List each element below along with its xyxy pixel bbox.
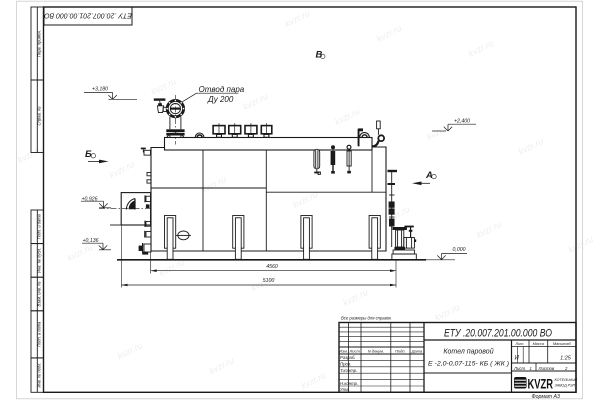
svg-text:Инв. № подл.: Инв. № подл.	[37, 363, 42, 388]
svg-text:Разраб.: Разраб.	[340, 355, 356, 360]
svg-text:Лист: Лист	[513, 366, 525, 371]
svg-text:Взам. инв. №: Взам. инв. №	[37, 281, 42, 306]
svg-text:Подп. и дата: Подп. и дата	[37, 214, 42, 240]
svg-text:+2,400: +2,400	[454, 119, 470, 125]
svg-text:Подп. и дата: Подп. и дата	[37, 321, 42, 347]
svg-text:Б: Б	[85, 149, 92, 160]
svg-text:Котел паровой: Котел паровой	[443, 347, 493, 355]
svg-text:Н.контр.: Н.контр.	[340, 381, 358, 386]
svg-text:5100: 5100	[263, 278, 275, 284]
svg-text:Справ. №: Справ. №	[37, 106, 42, 125]
svg-text:Листов: Листов	[538, 366, 555, 371]
svg-text:Ду 200: Ду 200	[207, 95, 234, 104]
svg-text:Дата: Дата	[411, 348, 423, 353]
svg-text:И: И	[515, 355, 520, 361]
svg-text:Лит.: Лит.	[515, 342, 525, 346]
svg-text:Все размеры для справок: Все размеры для справок	[341, 316, 392, 321]
svg-text:Е -2,0-0,07-115- КБ ( ЖК ): Е -2,0-0,07-115- КБ ( ЖК )	[428, 361, 509, 368]
svg-text:Пров.: Пров.	[340, 362, 351, 367]
svg-text:Подп.: Подп.	[395, 348, 406, 353]
svg-text:Перв. примен.: Перв. примен.	[37, 30, 42, 57]
svg-text:Масса: Масса	[533, 342, 544, 346]
svg-text:Инв. № дубл.: Инв. № дубл.	[37, 248, 42, 273]
svg-text:Лист: Лист	[349, 348, 361, 353]
svg-text:Масштаб: Масштаб	[553, 342, 572, 346]
svg-text:4560: 4560	[266, 264, 278, 270]
svg-text:Изм.: Изм.	[339, 348, 348, 353]
svg-text:Утв.: Утв.	[340, 387, 350, 392]
svg-text:0,000: 0,000	[453, 247, 466, 253]
svg-text:ЕТУ .20.007.201.00.000 ВО: ЕТУ .20.007.201.00.000 ВО	[444, 327, 552, 339]
svg-text:+3,180: +3,180	[92, 87, 108, 93]
svg-text:N докум.: N докум.	[368, 348, 384, 353]
svg-text:КОТЕЛЬНЫЙ: КОТЕЛЬНЫЙ	[555, 378, 578, 382]
svg-text:Формат А3: Формат А3	[532, 394, 560, 400]
svg-text:ЗАВОД РЭП: ЗАВОД РЭП	[555, 384, 576, 388]
svg-text:ЕТУ .20.007.201.00.000 ВО: ЕТУ .20.007.201.00.000 ВО	[44, 12, 132, 19]
svg-text:KVZR: KVZR	[528, 376, 554, 391]
svg-text:1:25: 1:25	[560, 355, 572, 361]
svg-text:Т.контр.: Т.контр.	[340, 368, 357, 373]
